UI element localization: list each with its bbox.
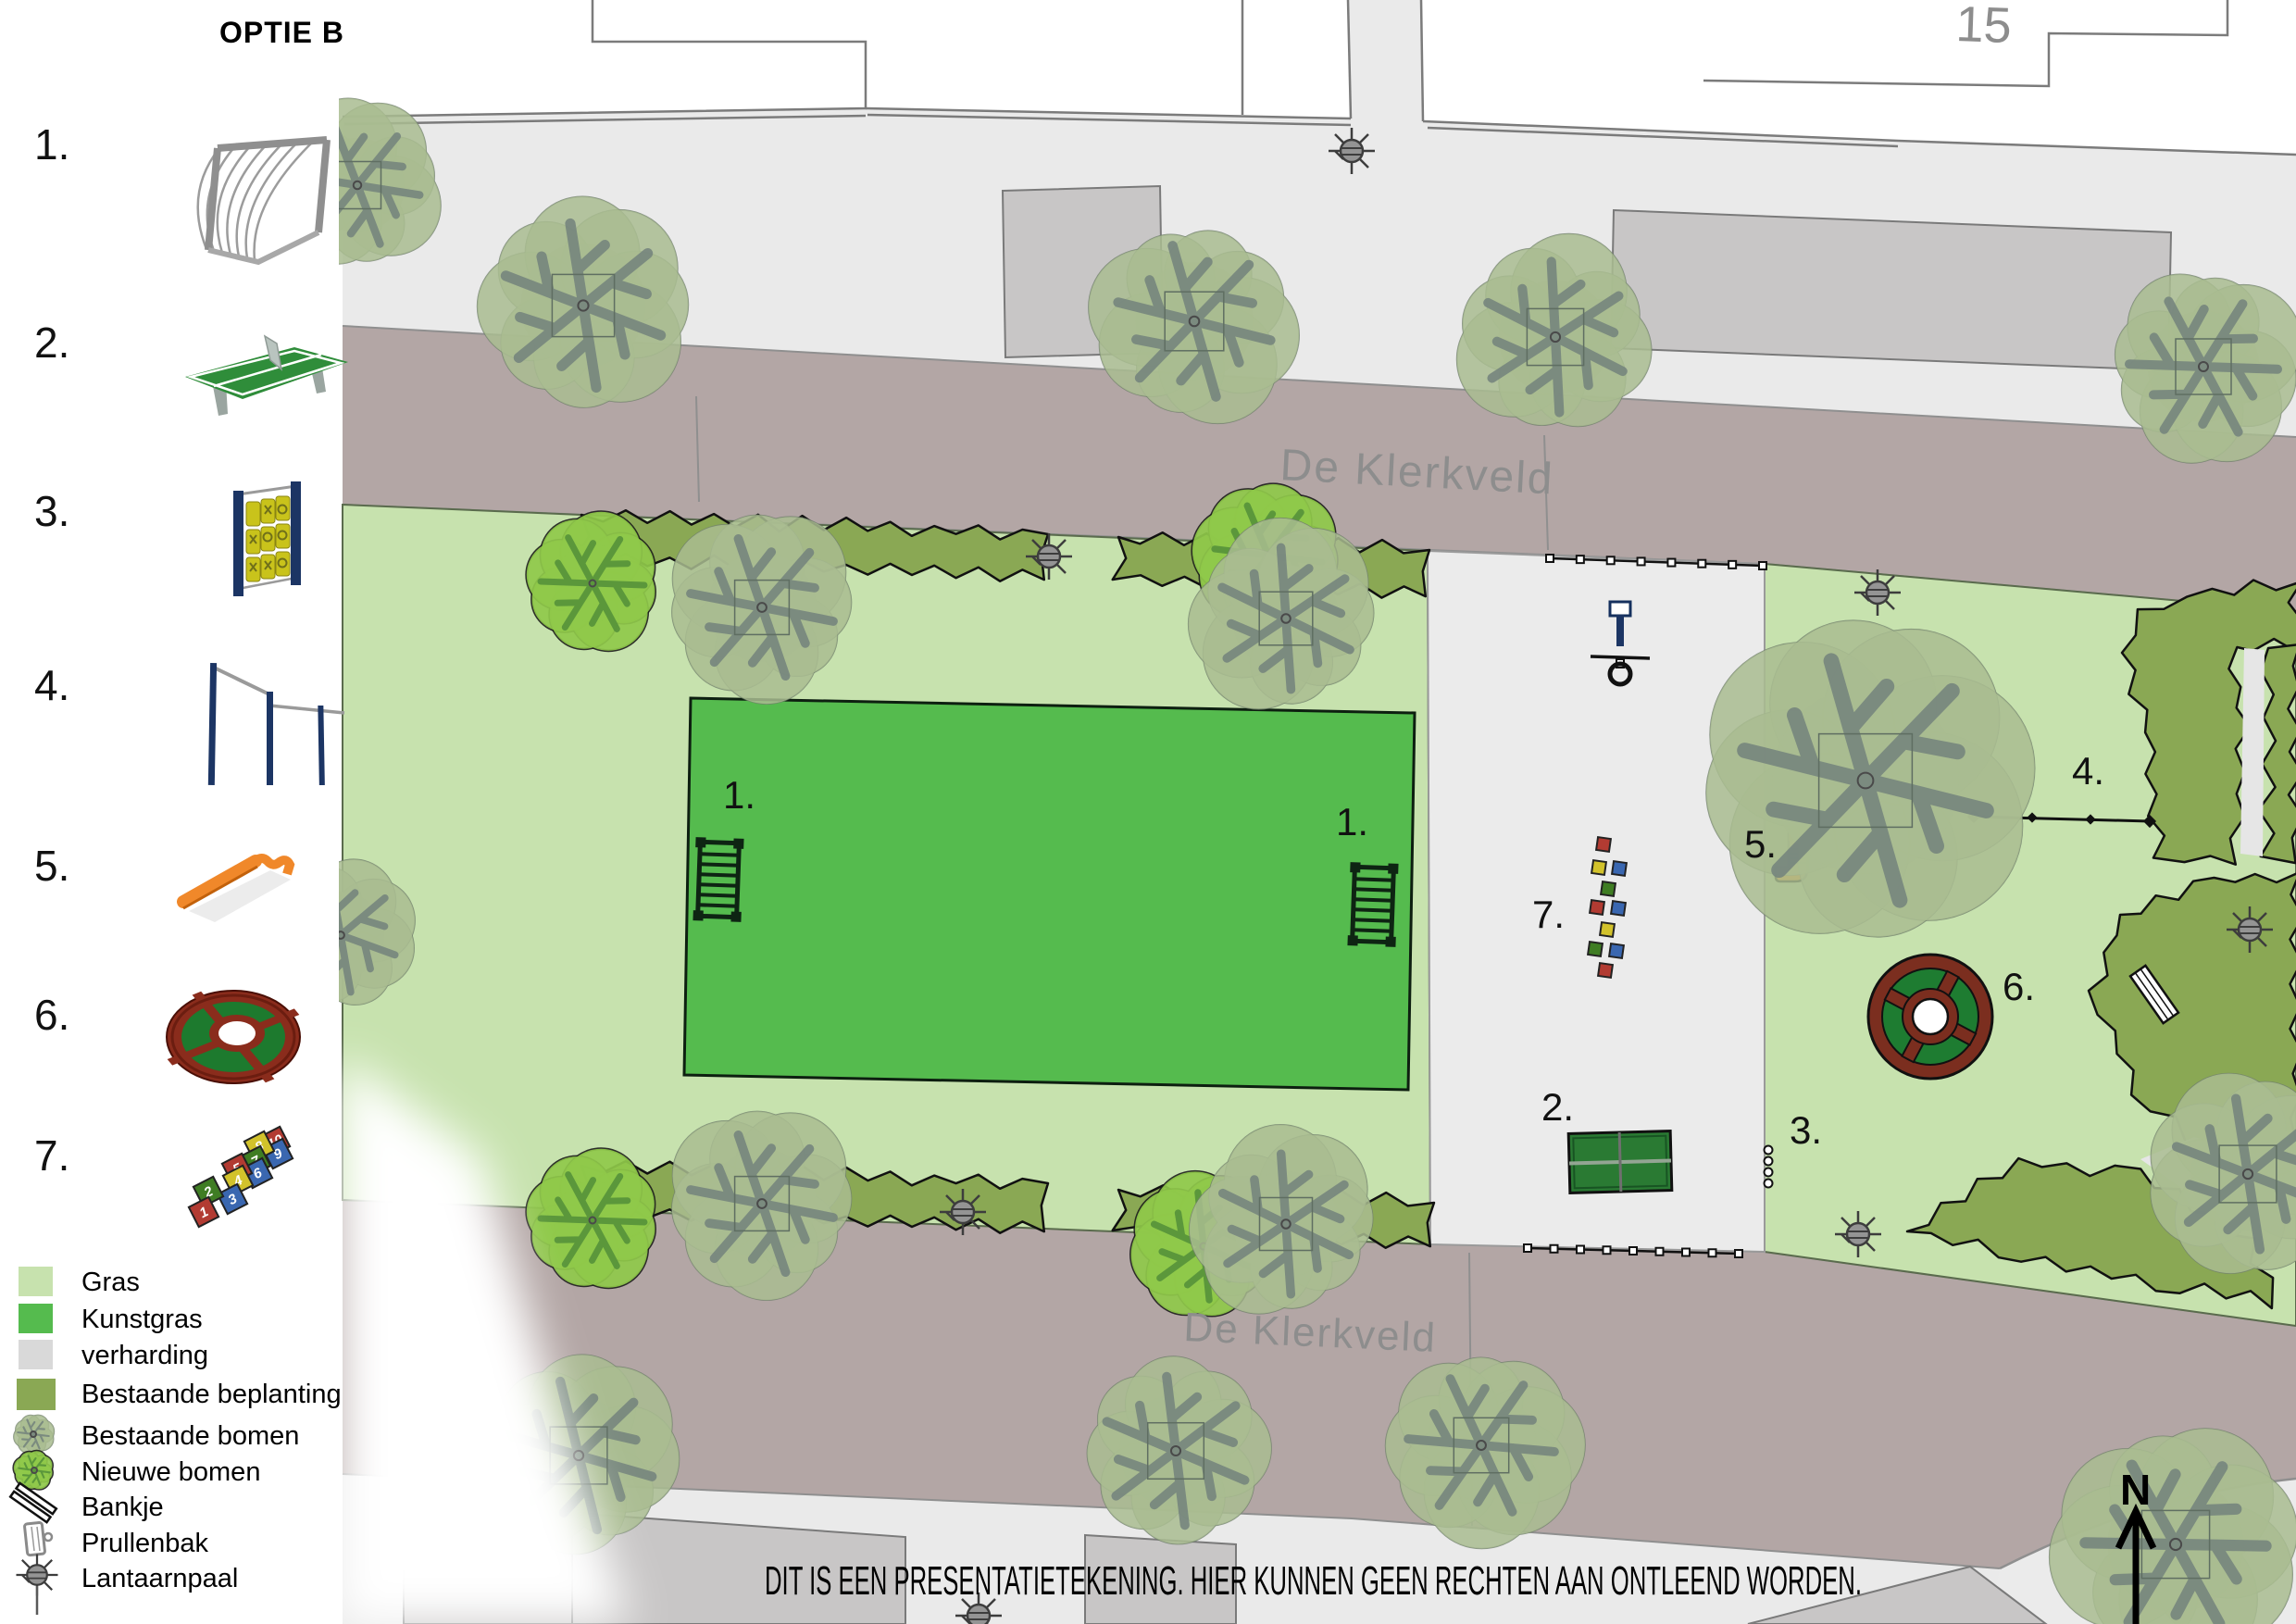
table-tennis-icon	[185, 336, 348, 416]
football-goal-icon	[198, 140, 327, 262]
legend-num-6: 6.	[34, 991, 69, 1039]
trash-bin-icon	[24, 1522, 52, 1555]
verharding-swatch	[19, 1340, 53, 1369]
hopscotch-tile	[1591, 860, 1606, 875]
existing-tree-icon	[14, 1415, 55, 1453]
presentation-drawing: De Klerkveld De Klerkveld 15 1. 1. 2. 3.…	[0, 0, 2296, 1624]
hopscotch-tile	[1598, 963, 1613, 978]
tic-tac-toe-panel-icon	[233, 481, 301, 596]
kunstgras-swatch	[19, 1304, 53, 1333]
circular-trampoline	[1868, 955, 1992, 1079]
marker-3: 3.	[1790, 1108, 1822, 1152]
legend-kunstgras: Kunstgras	[81, 1305, 203, 1334]
marker-5: 5.	[1744, 822, 1777, 866]
legend-num-5: 5.	[34, 842, 69, 890]
legend-lantaarnpaal: Lantaarnpaal	[81, 1564, 238, 1593]
hopscotch-tile	[1588, 942, 1603, 956]
hopscotch-tile	[1596, 837, 1611, 852]
existing-tree-icon	[14, 1415, 55, 1453]
house-number: 15	[1955, 0, 2013, 54]
hopscotch-icon: 10987654321	[189, 1127, 293, 1227]
legend-panel: OPTIE B 1. 2. 3. 4. 5. 6. 7.	[10, 16, 348, 1615]
legend-num-3: 3.	[34, 487, 69, 535]
marker-4: 4.	[2072, 749, 2104, 793]
page-title: OPTIE B	[219, 16, 344, 49]
table-tennis-table	[1568, 1131, 1672, 1193]
gras-swatch	[19, 1267, 53, 1296]
marker-2: 2.	[1541, 1085, 1574, 1129]
legend-num-2: 2.	[34, 319, 69, 367]
marker-1a: 1.	[723, 773, 755, 817]
circular-trampoline-icon	[167, 991, 300, 1083]
marker-7: 7.	[1532, 893, 1565, 936]
legend-num-7: 7.	[34, 1131, 69, 1180]
pull-up-bars-icon	[208, 663, 344, 785]
hopscotch-tile	[1612, 861, 1627, 876]
color-legend: Gras Kunstgras verharding Bestaande bepl…	[10, 1267, 341, 1615]
legend-num-1: 1.	[34, 120, 69, 169]
legend-num-4: 4.	[34, 661, 69, 709]
legend-bestaande-bomen: Bestaande bomen	[81, 1421, 299, 1451]
legend-bankje: Bankje	[81, 1493, 164, 1522]
marker-6: 6.	[2003, 965, 2035, 1008]
marker-1b: 1.	[1336, 800, 1368, 843]
balance-bench-icon	[183, 858, 291, 922]
legend-verharding: verharding	[81, 1341, 208, 1370]
kunstgras-field	[684, 698, 1415, 1090]
legend-prullenbak: Prullenbak	[81, 1529, 209, 1558]
legend-beplanting: Bestaande beplanting	[81, 1380, 342, 1409]
hopscotch-tile	[1590, 900, 1604, 915]
hopscotch-tile	[1609, 943, 1624, 958]
map-area: De Klerkveld De Klerkveld 15 1. 1. 2. 3.…	[270, 0, 2296, 1624]
legend-gras: Gras	[81, 1268, 140, 1297]
legend-nieuwe-bomen: Nieuwe bomen	[81, 1457, 260, 1487]
hopscotch-tile	[1601, 881, 1616, 896]
site-plan-svg: De Klerkveld De Klerkveld 15 1. 1. 2. 3.…	[0, 0, 2296, 1624]
disclaimer-text: DIT IS EEN PRESENTATIETEKENING. HIER KUN…	[765, 1558, 1862, 1604]
hopscotch-tile	[1611, 901, 1626, 916]
beplanting-swatch	[17, 1379, 56, 1410]
hopscotch-tile	[1600, 922, 1615, 937]
